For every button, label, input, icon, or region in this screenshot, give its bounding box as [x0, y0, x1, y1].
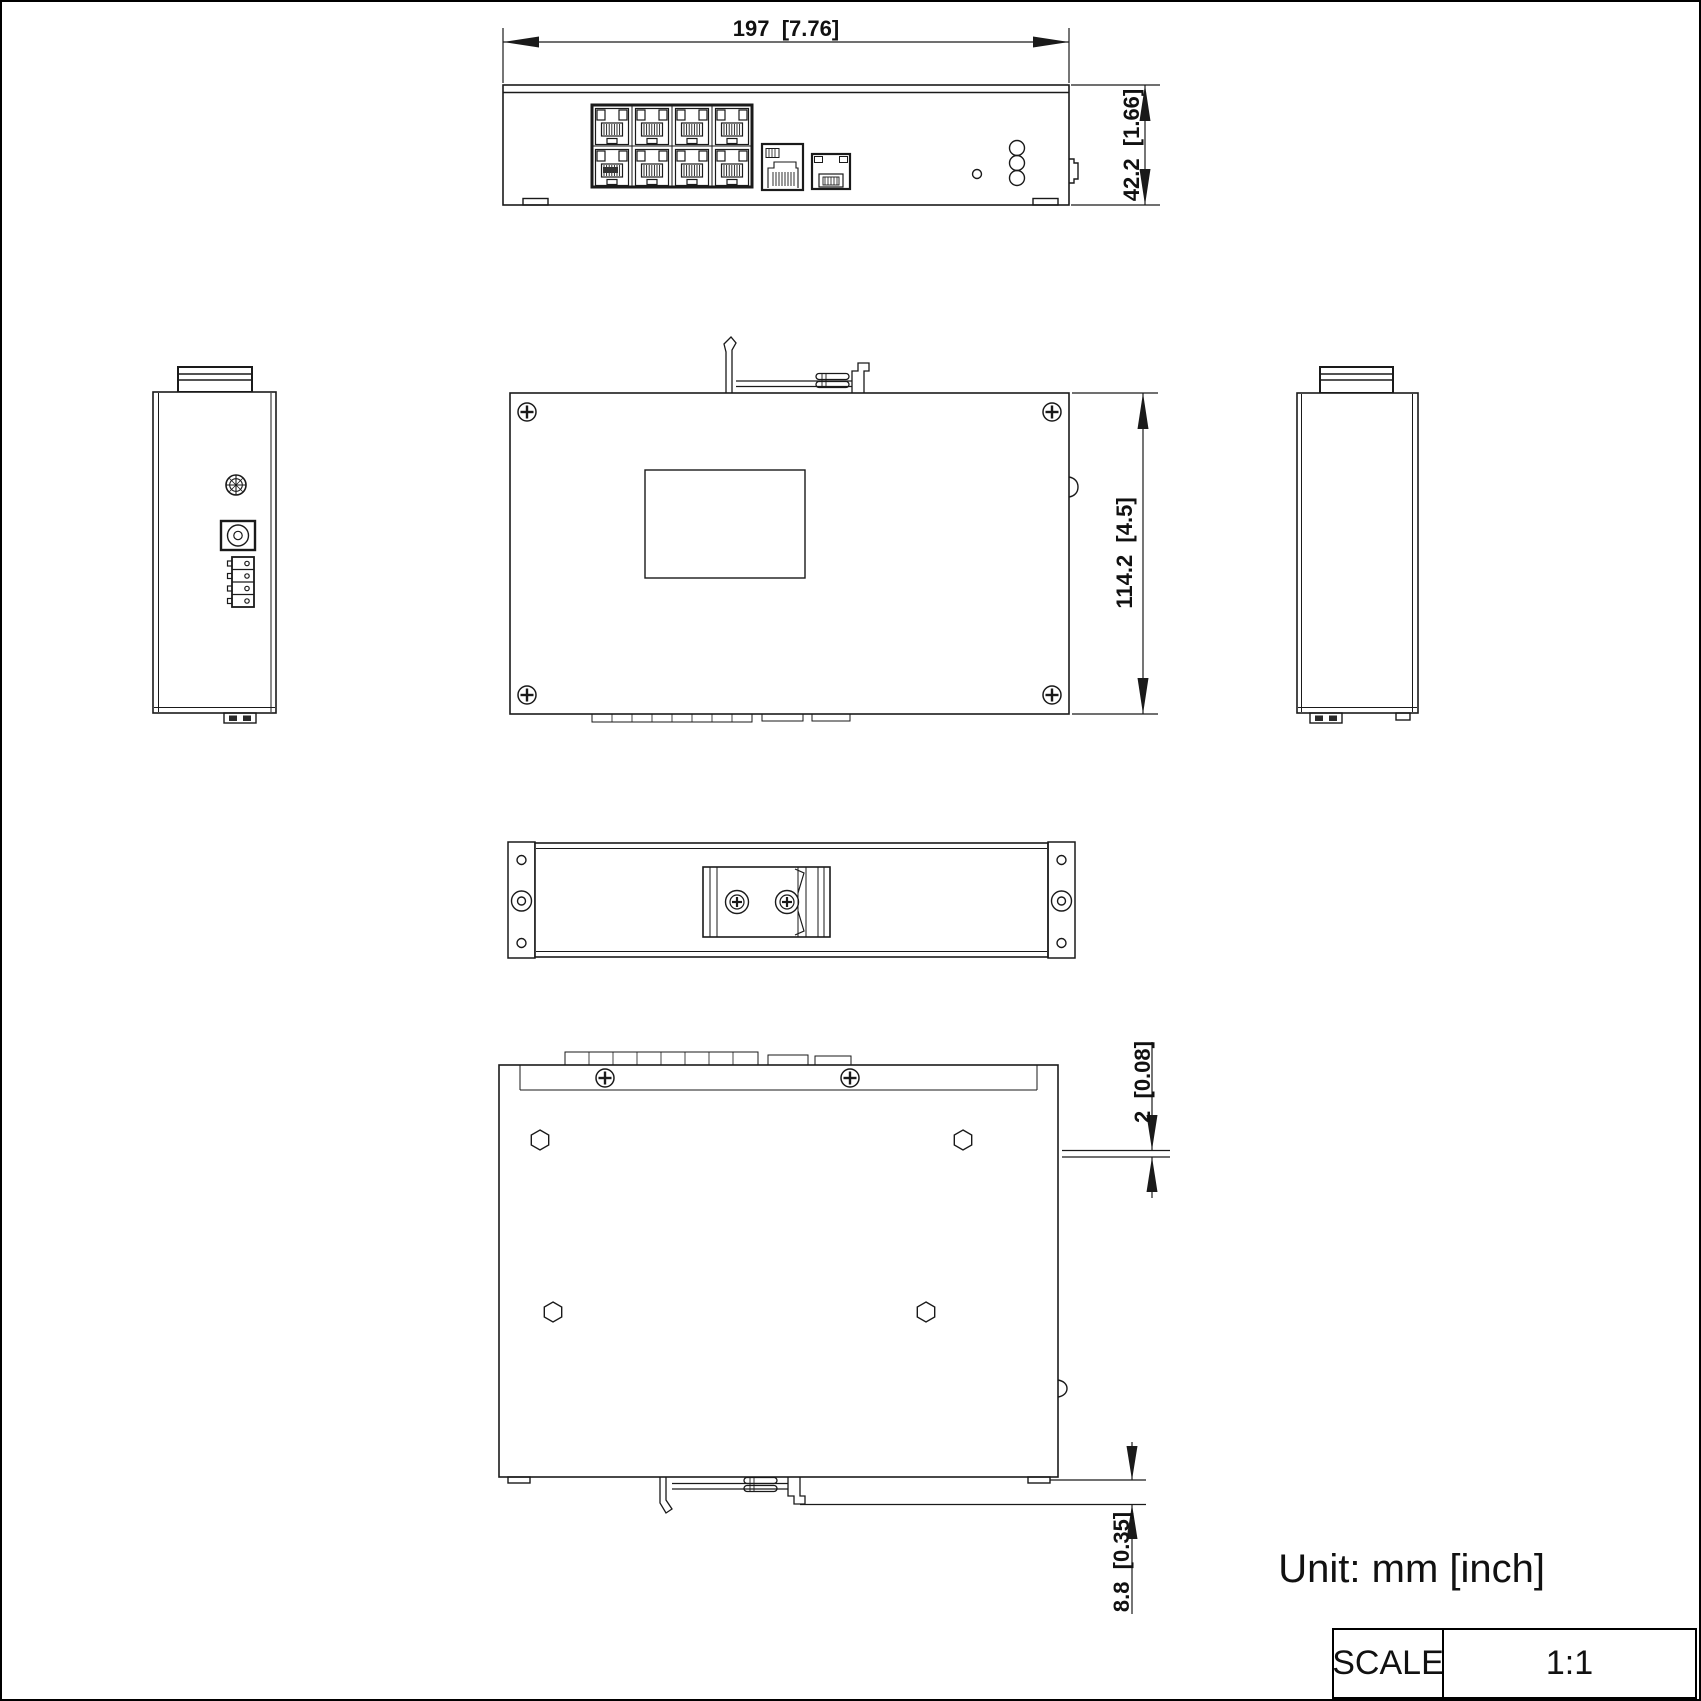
side-tab-top	[1069, 477, 1078, 497]
drawing-sheet: 197 [7.76] 42.2 [1.66] 114.2 [4.5] 2 [0.…	[0, 0, 1701, 1701]
front-view	[503, 85, 1078, 205]
chassis-screw	[596, 1069, 614, 1087]
bottom-foot-left	[508, 1477, 530, 1483]
corner-screw	[518, 403, 536, 421]
corner-screw	[1043, 403, 1061, 421]
hex-standoff	[531, 1130, 548, 1150]
unit-note: Unit: mm [inch]	[1245, 1543, 1545, 1595]
top-view	[510, 337, 1078, 722]
ground-screw	[226, 475, 246, 495]
side-view-right	[1297, 367, 1418, 723]
side-view-left	[153, 367, 276, 723]
hex-standoff	[954, 1130, 971, 1150]
bottom-tab-right	[1396, 713, 1410, 720]
scale-table: SCALE 1:1	[1332, 1628, 1697, 1699]
port-label-mark	[603, 167, 618, 173]
scale-value: 1:1	[1442, 1630, 1695, 1697]
hex-standoff	[917, 1302, 934, 1322]
din-rail-clip-bottom	[660, 1477, 805, 1513]
corner-screw	[1043, 686, 1061, 704]
bottom-foot-right	[1028, 1477, 1050, 1483]
side-tab-bottom	[1058, 1380, 1067, 1397]
dim-label-overall-width: 197 [7.76]	[636, 14, 936, 44]
dim-label-body-depth: 114.2 [4.5]	[1110, 453, 1140, 653]
scale-label: SCALE	[1334, 1630, 1442, 1697]
bottom-view	[499, 1052, 1067, 1513]
front-edge-ports	[592, 714, 850, 722]
chassis-screw	[841, 1069, 859, 1087]
din-rail-clip-top	[724, 337, 869, 393]
rear-view	[508, 842, 1075, 958]
corner-screw	[518, 686, 536, 704]
side-ground-tab	[1069, 159, 1078, 183]
dim-label-din-clip: 8.8 [0.35]	[1107, 1462, 1137, 1662]
bottom-connector-right	[1310, 713, 1342, 723]
hex-standoff	[544, 1302, 561, 1322]
dim-label-front-height: 42.2 [1.66]	[1117, 45, 1147, 245]
dim-label-rear-lip: 2 [0.08]	[1128, 982, 1158, 1182]
dim-din-clip	[800, 1442, 1146, 1614]
bottom-connector-left	[224, 713, 256, 723]
port-underside-marks	[565, 1052, 851, 1065]
drawing-lineart	[0, 0, 1701, 1701]
